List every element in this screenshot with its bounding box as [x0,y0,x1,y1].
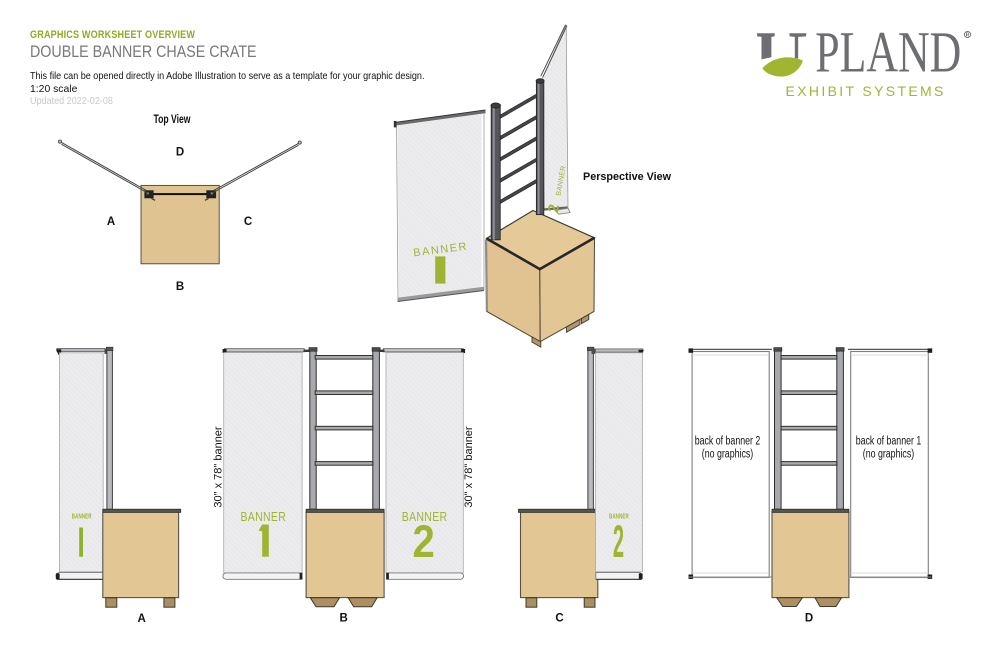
svg-text:back of banner 1: back of banner 1 [856,434,922,448]
svg-text:D: D [805,613,813,625]
svg-text:A: A [107,216,115,228]
svg-text:B: B [339,613,347,625]
svg-text:BANNER: BANNER [72,514,92,521]
svg-text:C: C [555,613,563,625]
svg-text:A: A [138,613,146,625]
svg-text:30" x 78" banner: 30" x 78" banner [463,426,475,508]
svg-text:(no graphics): (no graphics) [863,447,914,461]
svg-text:C: C [244,216,252,228]
svg-text:(no graphics): (no graphics) [702,447,753,461]
svg-text:BANNER: BANNER [240,510,286,524]
svg-text:Top View: Top View [153,114,190,126]
svg-text:2: 2 [412,516,434,567]
svg-text:D: D [176,147,184,159]
svg-text:back of banner 2: back of banner 2 [695,434,761,448]
svg-text:2: 2 [613,517,624,567]
svg-text:B: B [176,281,184,293]
svg-text:Perspective View: Perspective View [583,171,672,183]
svg-text:30" x 78" banner: 30" x 78" banner [213,426,225,508]
